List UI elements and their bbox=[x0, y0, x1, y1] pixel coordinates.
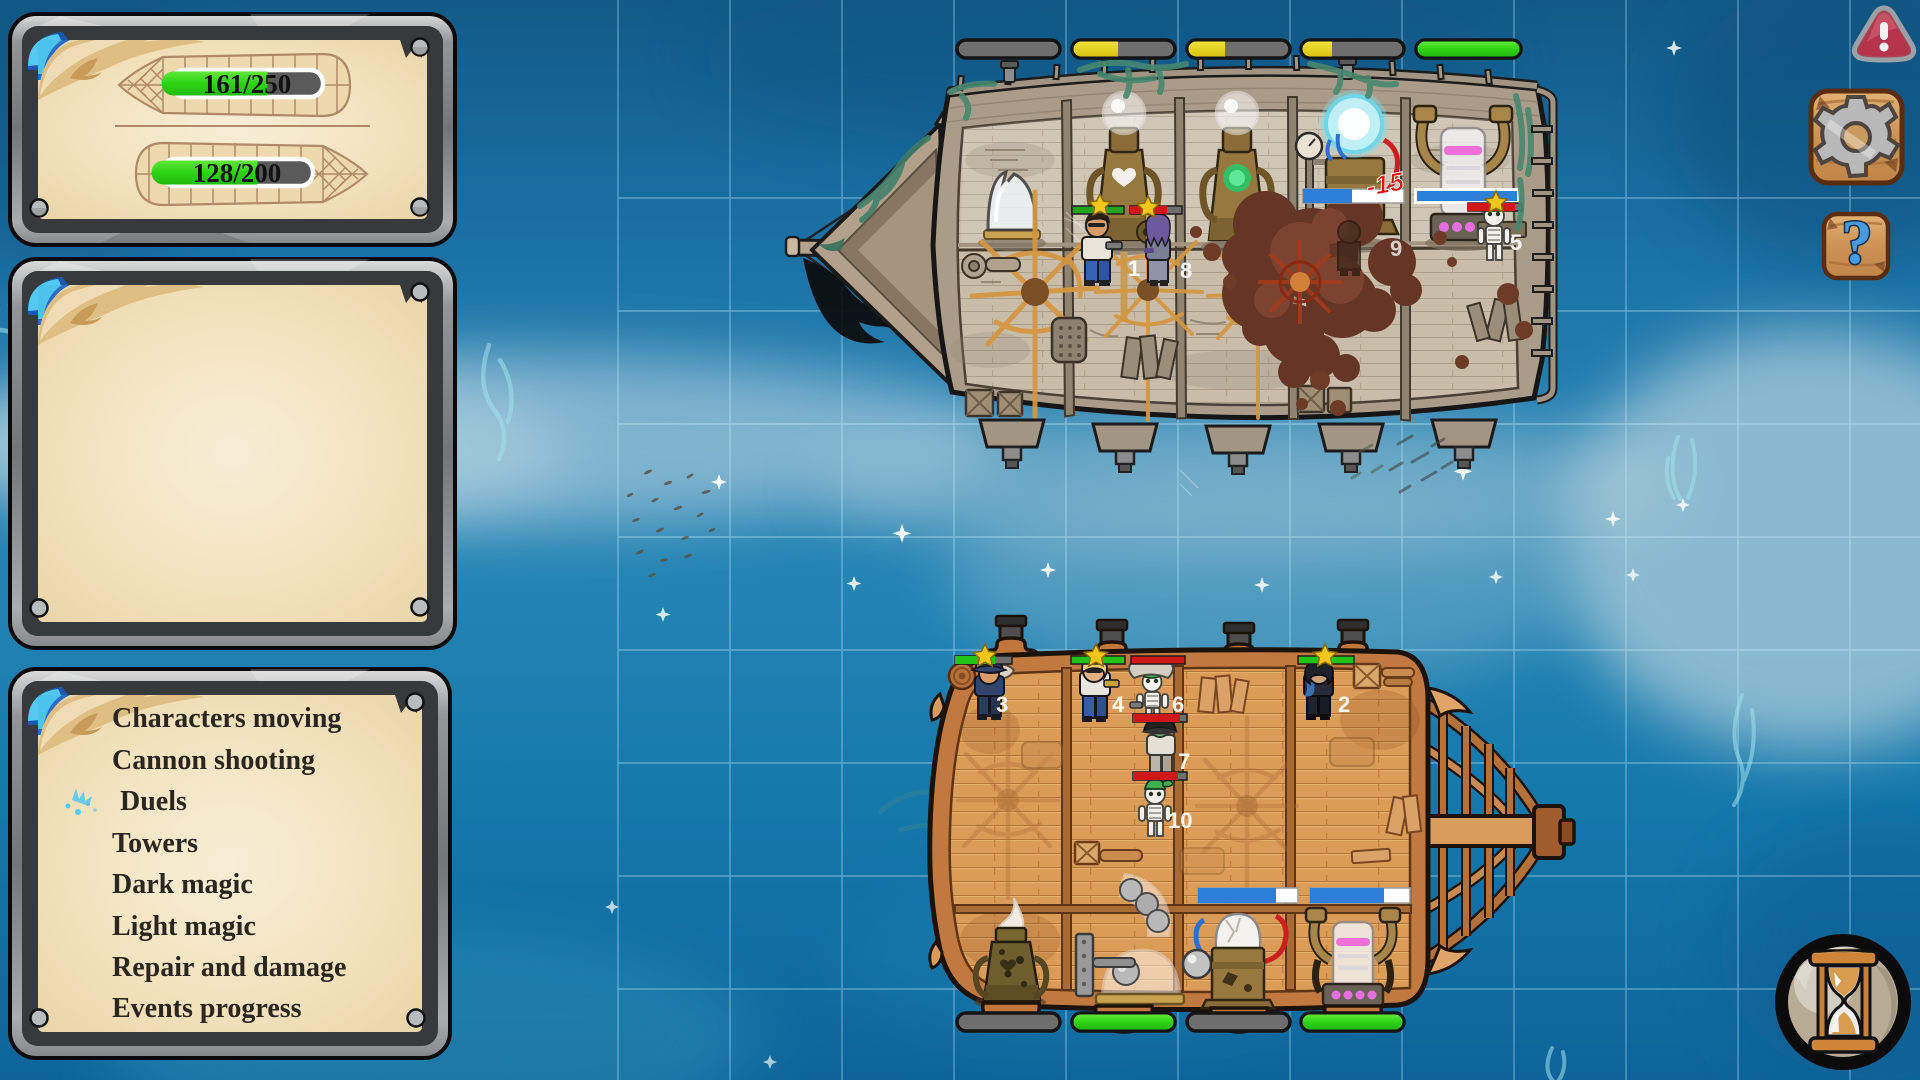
svg-text:4: 4 bbox=[1112, 692, 1125, 717]
svg-text:?: ? bbox=[1842, 209, 1873, 277]
svg-text:Dark magic: Dark magic bbox=[112, 869, 253, 900]
svg-text:161/250: 161/250 bbox=[203, 69, 292, 99]
svg-text:Towers: Towers bbox=[112, 828, 198, 859]
svg-text:10: 10 bbox=[1168, 808, 1192, 833]
svg-text:6: 6 bbox=[1172, 692, 1184, 717]
svg-text:Cannon shooting: Cannon shooting bbox=[112, 745, 315, 776]
svg-text:9: 9 bbox=[1390, 236, 1402, 261]
svg-text:Light magic: Light magic bbox=[112, 911, 256, 942]
svg-text:1: 1 bbox=[1128, 256, 1140, 281]
svg-text:Repair and damage: Repair and damage bbox=[112, 952, 346, 983]
svg-text:3: 3 bbox=[996, 692, 1008, 717]
svg-text:Duels: Duels bbox=[120, 786, 187, 817]
svg-text:5: 5 bbox=[1510, 230, 1522, 255]
svg-text:Events progress: Events progress bbox=[112, 993, 302, 1024]
svg-text:2: 2 bbox=[1338, 692, 1350, 717]
svg-text:Characters moving: Characters moving bbox=[112, 703, 341, 734]
svg-text:8: 8 bbox=[1180, 258, 1192, 283]
svg-text:7: 7 bbox=[1178, 749, 1190, 774]
svg-text:128/200: 128/200 bbox=[193, 158, 282, 188]
